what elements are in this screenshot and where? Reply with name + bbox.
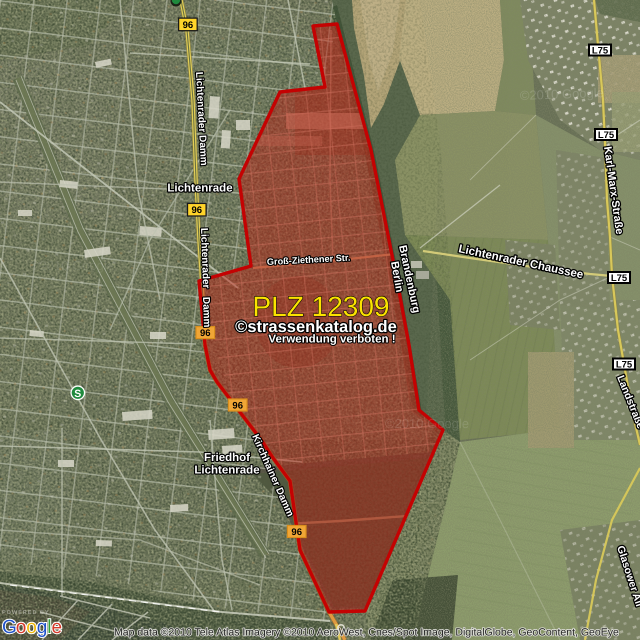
- svg-text:L75: L75: [598, 130, 615, 141]
- svg-text:G: G: [2, 617, 17, 638]
- svg-text:©2010 Google: ©2010 Google: [30, 258, 114, 273]
- svg-text:e: e: [52, 617, 63, 638]
- svg-text:POWERED BY: POWERED BY: [2, 610, 50, 616]
- svg-text:g: g: [37, 617, 48, 638]
- svg-text:o: o: [16, 617, 27, 638]
- svg-text:o: o: [26, 617, 37, 638]
- svg-text:Lichtenrade: Lichtenrade: [167, 183, 232, 195]
- svg-text:Map data ©2010 Tele Atlas Ima: Map data ©2010 Tele Atlas Imagery ©2010 …: [114, 627, 619, 639]
- svg-text:Verwendung verboten !: Verwendung verboten !: [268, 334, 395, 346]
- svg-text:S: S: [74, 388, 81, 400]
- svg-text:L75: L75: [616, 359, 633, 370]
- svg-text:Lichtenrade: Lichtenrade: [194, 465, 259, 477]
- svg-text:©2010 Google: ©2010 Google: [520, 85, 605, 103]
- svg-text:©2010 Google: ©2010 Google: [385, 416, 469, 431]
- svg-text:96: 96: [183, 20, 194, 31]
- svg-text:96: 96: [232, 400, 243, 411]
- svg-text:96: 96: [291, 527, 302, 538]
- svg-text:96: 96: [192, 205, 203, 216]
- svg-text:Damm: Damm: [200, 297, 212, 328]
- svg-text:96: 96: [200, 328, 211, 339]
- svg-text:L75: L75: [592, 45, 609, 56]
- svg-text:L75: L75: [611, 273, 628, 284]
- svg-text:Lichtenrader: Lichtenrader: [198, 228, 211, 289]
- svg-text:Friedhof: Friedhof: [204, 452, 250, 464]
